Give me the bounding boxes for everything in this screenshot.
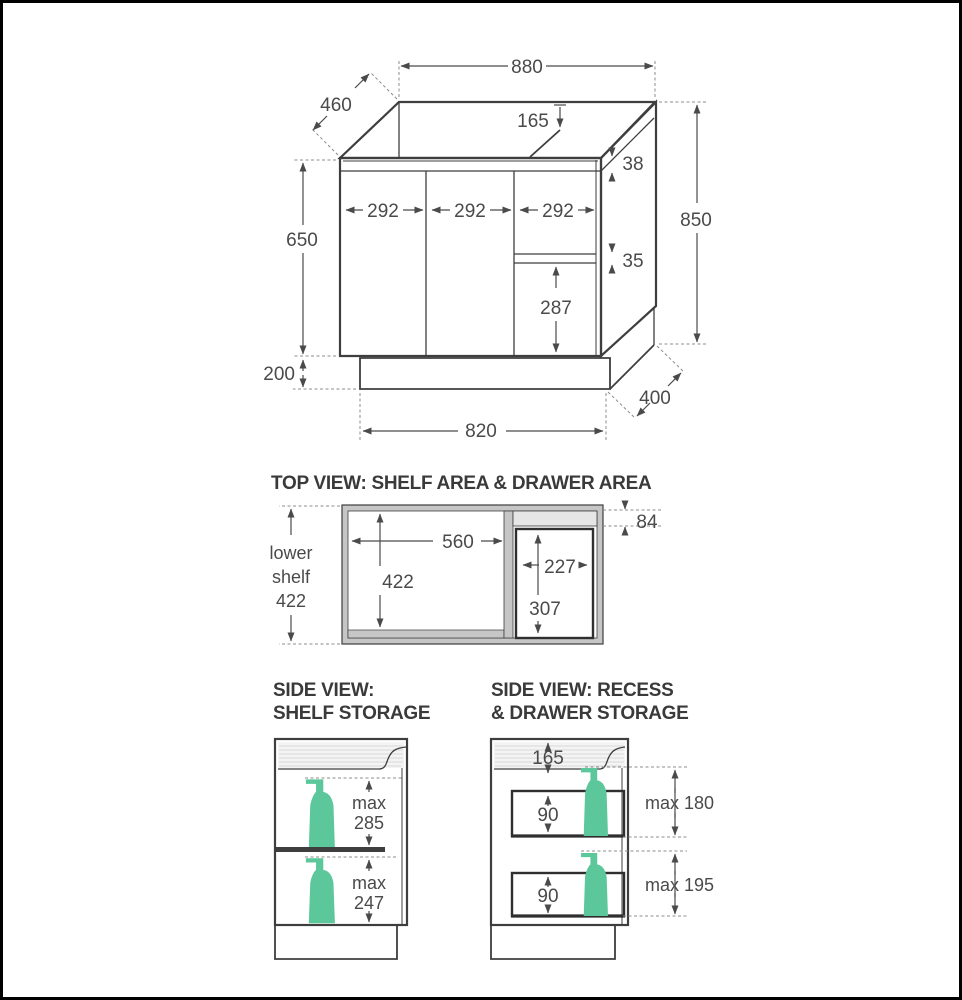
dim-recess-side: 165 [532, 743, 564, 773]
dim-base-depth-label: 400 [639, 388, 671, 409]
dim-door1-label: 292 [367, 201, 399, 222]
dim-top-rail-label: 38 [622, 154, 643, 175]
perspective-view: 880 460 165 38 292 292 [263, 57, 712, 442]
bottle-lower-drawer [581, 853, 608, 916]
dim-upper-max: max 180 [645, 770, 714, 835]
dim-body-height: 650 [286, 160, 336, 356]
lower-max-195-label: max 195 [645, 875, 714, 895]
top-view: TOP VIEW: SHELF AREA & DRAWER AREA 560 4… [269, 473, 663, 644]
dim-drawer-gap-label: 35 [622, 251, 643, 272]
dim-back-gap-label: 84 [636, 512, 658, 533]
dim-kick-height: 200 [263, 360, 356, 389]
side-view-drawer: SIDE VIEW: RECESS & DRAWER STORAGE 165 9… [491, 680, 714, 959]
lower-shelf-word1: lower [269, 543, 312, 563]
dim-drawer-width-label: 227 [544, 557, 576, 578]
lower-shelf-word2: shelf [272, 567, 311, 587]
dim-upper-drawer-height-label: 90 [537, 805, 558, 826]
lower-max-value: 247 [354, 893, 384, 913]
dim-door2-label: 292 [454, 201, 486, 222]
upper-max-value: 285 [354, 813, 384, 833]
dim-lower-shelf: lower shelf 422 [269, 506, 340, 644]
upper-max-180-label: max 180 [645, 793, 714, 813]
side-drawer-title-1: SIDE VIEW: RECESS [491, 680, 673, 701]
top-view-title: TOP VIEW: SHELF AREA & DRAWER AREA [271, 473, 652, 494]
dim-base-depth: 400 [608, 346, 684, 418]
dim-base-width: 820 [360, 393, 606, 442]
side-shelf-title-1: SIDE VIEW: [273, 680, 374, 701]
dim-kick-height-label: 200 [263, 364, 295, 385]
recess-partition [530, 130, 560, 157]
bottle-lower-shelf [306, 858, 335, 923]
dim-upper-drawer-height: 90 [537, 796, 558, 832]
divider-wall [504, 511, 513, 638]
dim-recess-side-label: 165 [532, 748, 564, 769]
bottle-upper-shelf [306, 779, 335, 848]
middle-shelf [275, 847, 385, 852]
vanity-dimension-diagram: 880 460 165 38 292 292 [0, 0, 962, 1000]
dim-depth: 460 [311, 72, 397, 155]
dim-recess: 165 [517, 105, 566, 132]
dim-drawer-gap: 35 [612, 246, 644, 272]
cabinet-side-face [601, 102, 656, 356]
dim-drawer-front-label: 287 [540, 298, 572, 319]
dim-total-height-label: 850 [680, 210, 712, 231]
side-shelf-title-2: SHELF STORAGE [273, 703, 430, 724]
dim-shelf-upper-max: max 285 [352, 781, 386, 845]
dim-top-width-label: 880 [511, 57, 543, 78]
shelf-floor-band [348, 630, 504, 638]
dim-drawer-depth-label: 307 [529, 599, 561, 620]
dim-base-width-label: 820 [465, 421, 497, 442]
drawer-kickboard [491, 925, 615, 959]
dim-lower-drawer-height-label: 90 [537, 886, 558, 907]
dim-back-gap: 84 [603, 504, 663, 533]
kickboard-front [360, 358, 610, 389]
dim-lower-max: max 195 [645, 854, 714, 914]
shelf-kickboard [275, 925, 397, 959]
dim-door3-label: 292 [542, 201, 574, 222]
dim-recess-label: 165 [517, 111, 549, 132]
dim-total-height: 850 [659, 102, 712, 344]
back-gap-strip [513, 511, 597, 526]
dim-lower-drawer-height: 90 [537, 877, 558, 913]
lower-max-word: max [352, 873, 386, 893]
bottle-upper-drawer [581, 768, 608, 836]
dim-door-widths: 292 292 292 [346, 201, 594, 222]
kickboard-side-bottom [610, 345, 654, 389]
upper-max-word: max [352, 793, 386, 813]
dim-depth-label: 460 [320, 95, 352, 116]
cabinet-front-face [340, 158, 601, 356]
dim-drawer-front: 287 [540, 267, 572, 352]
lower-shelf-value: 422 [276, 591, 306, 611]
diagram-svg: 880 460 165 38 292 292 [3, 3, 962, 1000]
dim-shelf-depth-label: 422 [382, 572, 414, 593]
side-drawer-title-2: & DRAWER STORAGE [491, 703, 689, 724]
dim-top-width: 880 [399, 57, 655, 97]
side-view-shelf: SIDE VIEW: SHELF STORAGE max 285 max [273, 680, 430, 959]
dim-shelf-lower-max: max 247 [352, 860, 386, 922]
dim-body-height-label: 650 [286, 230, 318, 251]
dim-shelf-width-label: 560 [442, 532, 474, 553]
